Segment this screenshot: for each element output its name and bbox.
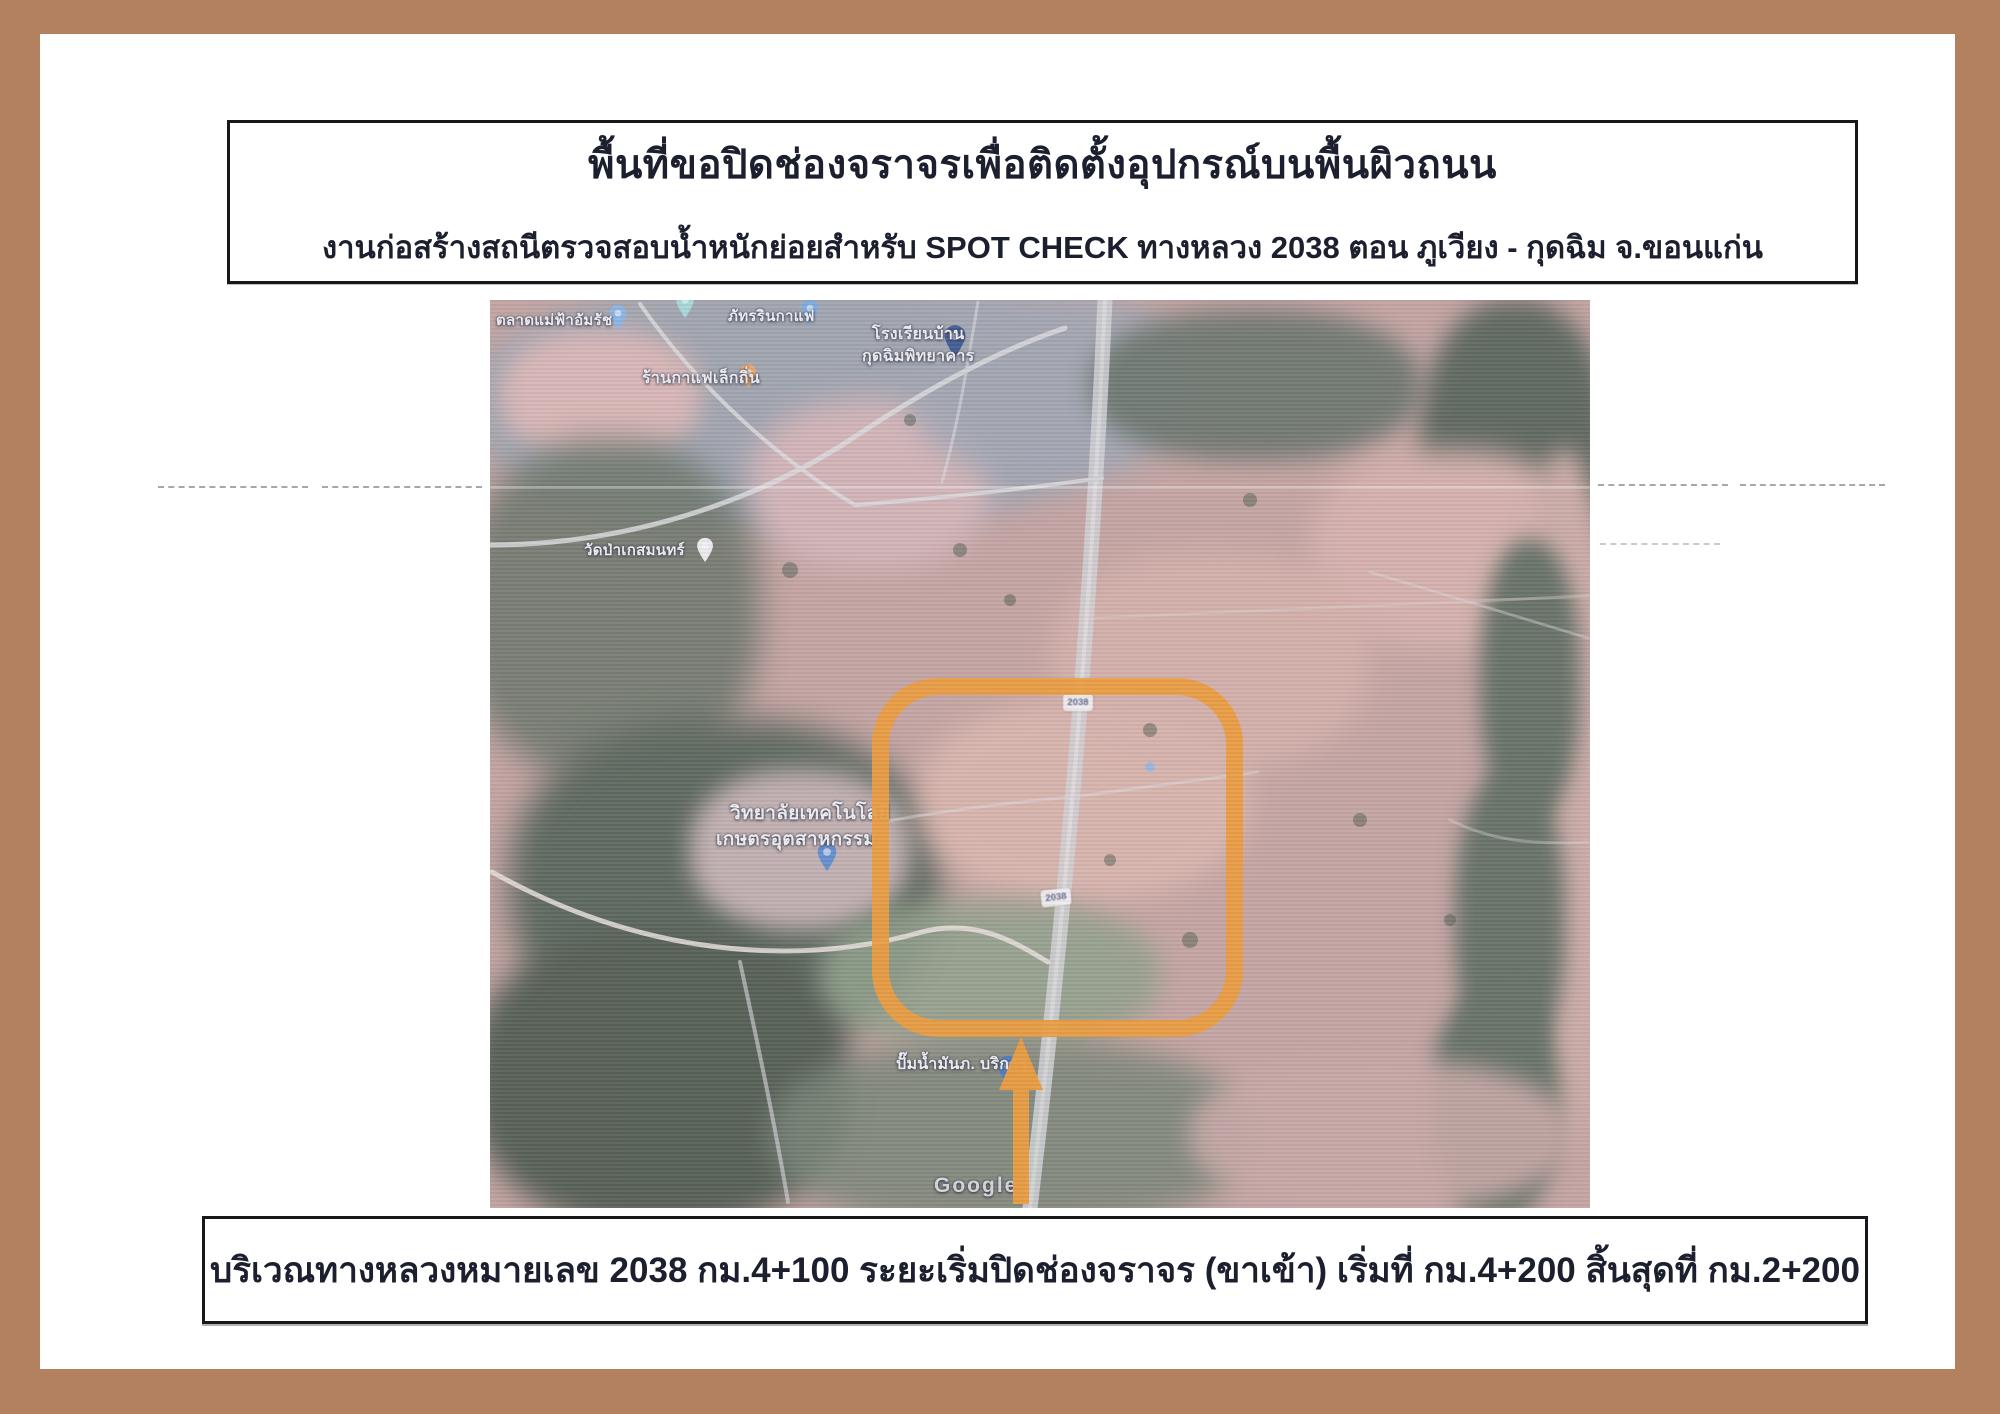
scan-artifact [1598, 484, 1728, 486]
scan-artifact [1740, 484, 1885, 486]
scanned-document: { "colors": { "frame": "#b3815f", "page"… [0, 0, 2000, 1414]
page-subtitle: งานก่อสร้างสถนีตรวจสอบน้ำหนักย่อยสำหรับ … [322, 222, 1763, 272]
satellite-map: ตลาดแม่ฟ้าอัมรัช ภัทรรินกาแฟ โรงเรียนบ้า… [490, 300, 1590, 1208]
page-title: พื้นที่ขอปิดช่องจราจรเพื่อติดตั้งอุปกรณ์… [588, 132, 1497, 196]
title-box: พื้นที่ขอปิดช่องจราจรเพื่อติดตั้งอุปกรณ์… [227, 120, 1858, 284]
highlight-rectangle [881, 687, 1235, 1029]
scan-artifact [158, 486, 308, 488]
scan-artifact [1600, 543, 1720, 545]
caption-text: บริเวณทางหลวงหมายเลข 2038 กม.4+100 ระยะเ… [210, 1243, 1860, 1298]
highlight-annotation [490, 300, 1590, 1208]
direction-arrow-icon [999, 1037, 1043, 1204]
caption-box: บริเวณทางหลวงหมายเลข 2038 กม.4+100 ระยะเ… [202, 1216, 1868, 1324]
scan-artifact [322, 486, 482, 488]
document-page: พื้นที่ขอปิดช่องจราจรเพื่อติดตั้งอุปกรณ์… [40, 34, 1955, 1369]
